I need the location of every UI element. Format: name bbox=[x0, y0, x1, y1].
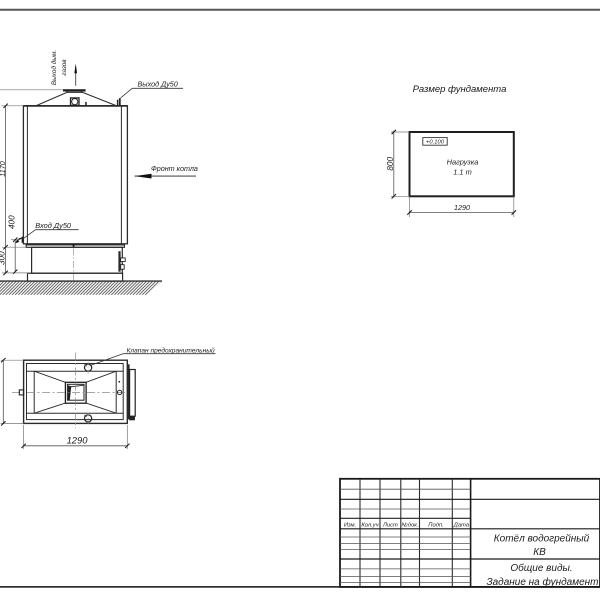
svg-text:Общие виды.: Общие виды. bbox=[510, 562, 572, 574]
svg-text:300: 300 bbox=[0, 251, 6, 265]
svg-text:800: 800 bbox=[386, 157, 395, 171]
svg-text:1170: 1170 bbox=[0, 161, 7, 176]
svg-text:Размер фундамента: Размер фундамента bbox=[413, 84, 507, 95]
svg-text:Котёл водогрейный: Котёл водогрейный bbox=[494, 534, 590, 545]
svg-text:Задание на фундамент: Задание на фундамент bbox=[486, 576, 598, 588]
svg-text:1290: 1290 bbox=[454, 203, 470, 212]
svg-text:1.1 т: 1.1 т bbox=[453, 167, 471, 176]
svg-text:Кол.уч: Кол.уч bbox=[361, 523, 378, 529]
svg-text:Вход Ду50: Вход Ду50 bbox=[35, 221, 72, 230]
svg-text:1290: 1290 bbox=[67, 434, 89, 445]
svg-text:Дата: Дата bbox=[453, 523, 470, 529]
svg-text:№док.: №док. bbox=[401, 523, 418, 529]
svg-text:Выход дым.: Выход дым. bbox=[50, 50, 58, 85]
svg-text:Нагрузка: Нагрузка bbox=[447, 157, 479, 166]
svg-text:КВ: КВ bbox=[533, 547, 546, 558]
svg-text:Лист: Лист bbox=[382, 523, 398, 529]
svg-text:+0.100: +0.100 bbox=[426, 140, 445, 146]
svg-text:400: 400 bbox=[7, 215, 16, 229]
svg-text:Клапан предохранительный: Клапан предохранительный bbox=[127, 346, 216, 354]
svg-text:газов: газов bbox=[61, 59, 68, 76]
svg-text:Подп.: Подп. bbox=[428, 523, 443, 529]
svg-text:Фронт котла: Фронт котла bbox=[151, 164, 198, 173]
svg-text:Выход Ду50: Выход Ду50 bbox=[138, 79, 178, 88]
svg-text:Изм.: Изм. bbox=[344, 523, 356, 529]
